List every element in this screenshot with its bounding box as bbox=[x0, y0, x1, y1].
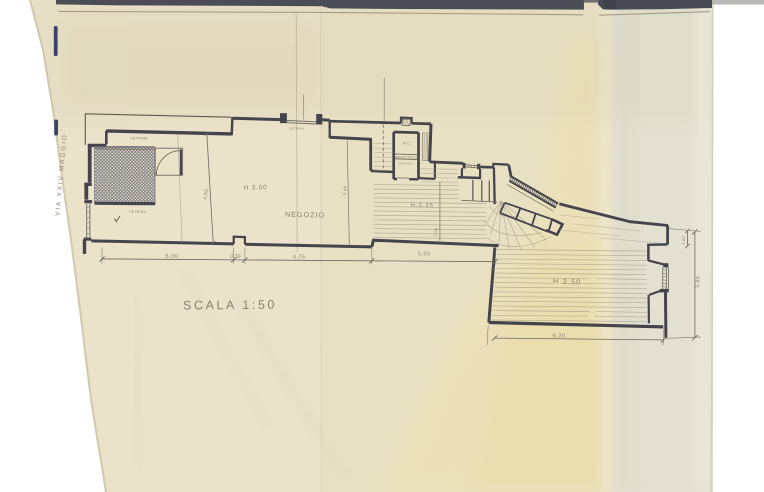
svg-text:ANTI W.C.: ANTI W.C. bbox=[398, 161, 414, 165]
svg-text:RIPOSTIGLIO: RIPOSTIGLIO bbox=[395, 155, 418, 159]
svg-text:6,20: 6,20 bbox=[553, 333, 566, 339]
svg-text:5,00: 5,00 bbox=[418, 252, 431, 258]
svg-text:H.3.35: H.3.35 bbox=[410, 202, 433, 209]
svg-text:H 3.50: H 3.50 bbox=[244, 184, 268, 191]
svg-text:W.C.: W.C. bbox=[403, 141, 412, 145]
svg-text:NEGOZIO: NEGOZIO bbox=[285, 210, 325, 220]
svg-text:VETRINA: VETRINA bbox=[289, 126, 305, 130]
svg-text:4,75: 4,75 bbox=[293, 255, 306, 261]
svg-text:VETRINA: VETRINA bbox=[131, 136, 148, 140]
svg-text:5,00: 5,00 bbox=[166, 254, 179, 260]
svg-text:VETRINA: VETRINA bbox=[129, 210, 146, 214]
svg-text:H 3.50: H 3.50 bbox=[553, 277, 582, 287]
svg-text:0,30: 0,30 bbox=[230, 254, 241, 260]
svg-text:3,60: 3,60 bbox=[695, 276, 702, 288]
svg-text:1,05: 1,05 bbox=[682, 236, 687, 245]
svg-text:SCALA 1:50: SCALA 1:50 bbox=[183, 298, 277, 313]
